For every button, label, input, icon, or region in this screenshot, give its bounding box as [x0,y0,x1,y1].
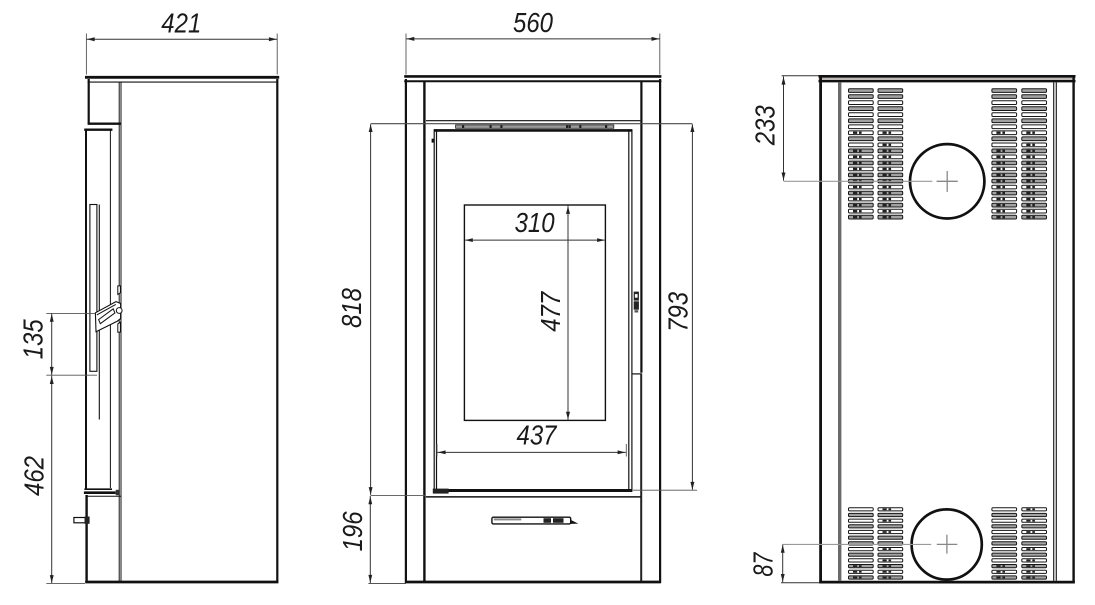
svg-text:310: 310 [515,207,555,238]
svg-text:560: 560 [513,7,553,38]
svg-text:818: 818 [336,288,367,328]
svg-text:87: 87 [747,552,778,577]
svg-text:477: 477 [535,291,566,332]
svg-text:793: 793 [662,292,693,332]
svg-text:196: 196 [337,511,368,551]
svg-text:233: 233 [750,105,781,146]
svg-text:462: 462 [18,456,49,496]
svg-text:421: 421 [161,8,201,39]
svg-text:437: 437 [517,419,558,450]
svg-text:135: 135 [17,319,48,359]
